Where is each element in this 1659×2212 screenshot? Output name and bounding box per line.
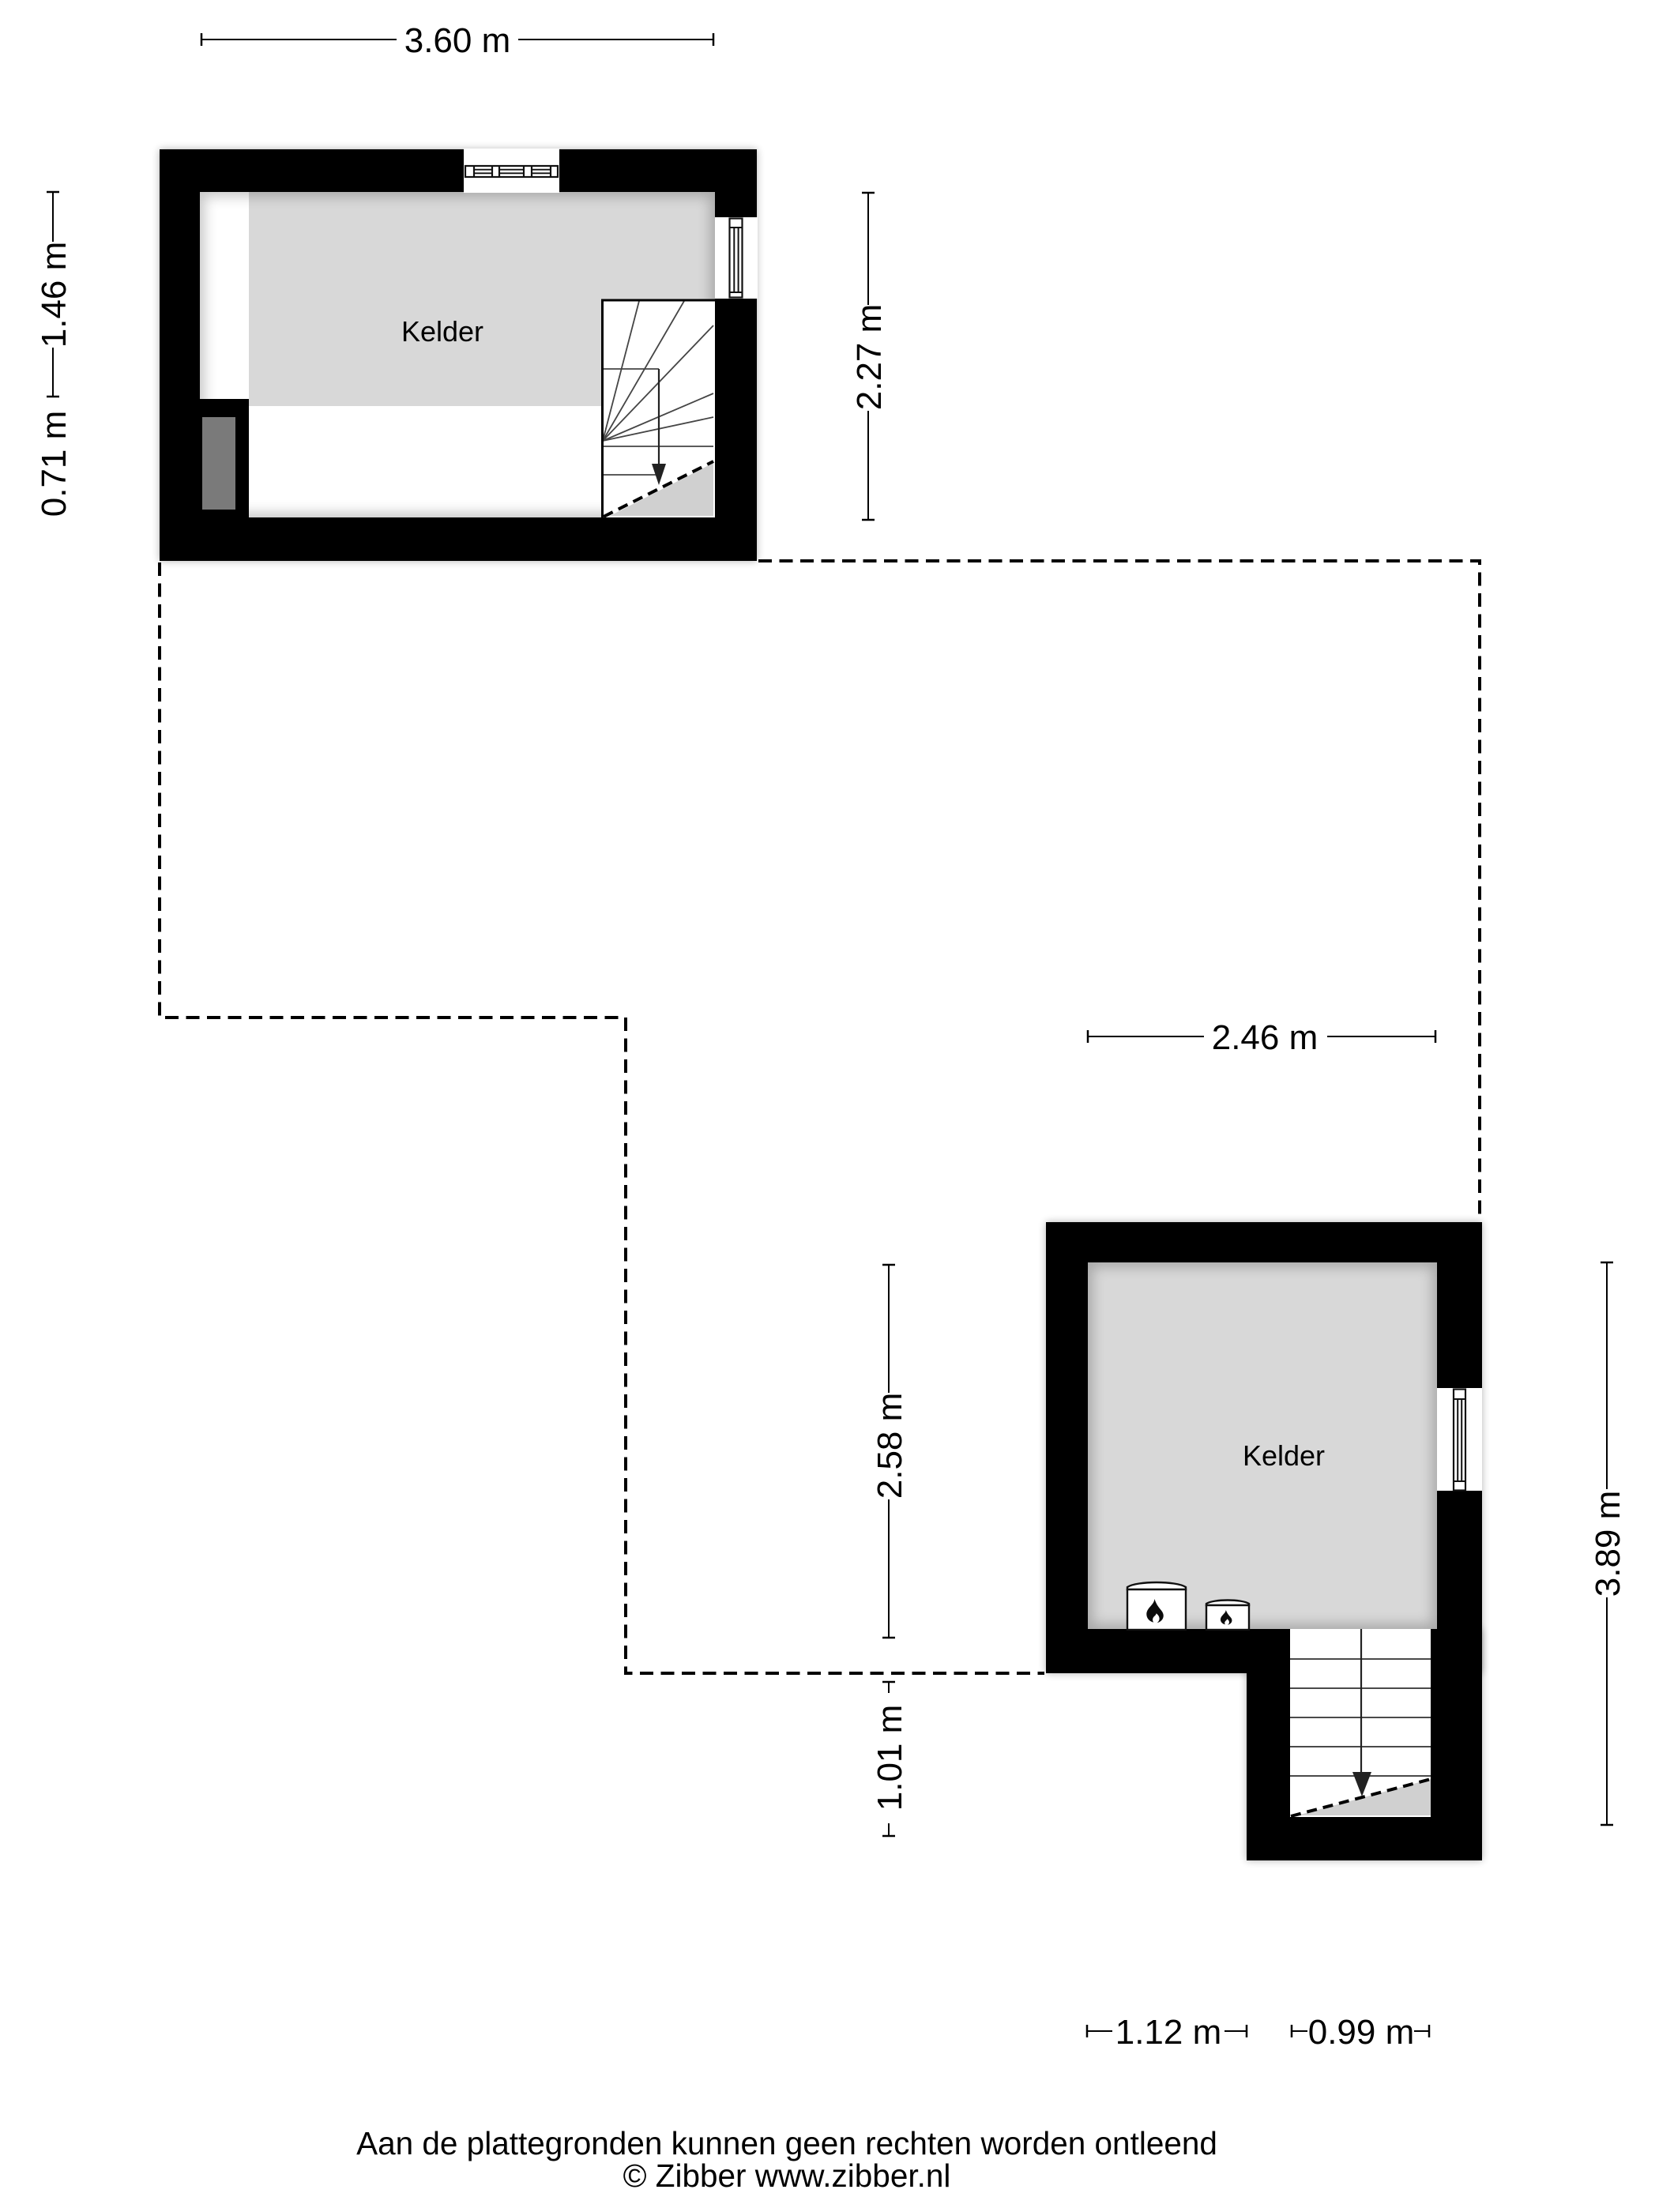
svg-text:Aan de plattegronden kunnen ge: Aan de plattegronden kunnen geen rechten… (356, 2125, 1217, 2161)
svg-text:Kelder: Kelder (401, 315, 483, 348)
svg-text:2.27 m: 2.27 m (850, 304, 889, 411)
svg-text:2.58 m: 2.58 m (871, 1393, 909, 1499)
svg-text:1.01 m: 1.01 m (871, 1705, 909, 1811)
svg-text:© Zibber www.zibber.nl: © Zibber www.zibber.nl (623, 2157, 951, 2194)
svg-text:Kelder: Kelder (1243, 1439, 1325, 1472)
svg-text:0.71 m: 0.71 m (35, 411, 73, 517)
svg-text:2.46 m: 2.46 m (1212, 1018, 1319, 1057)
svg-text:1.46 m: 1.46 m (35, 242, 73, 348)
svg-text:0.99 m: 0.99 m (1308, 2013, 1415, 2052)
svg-text:3.89 m: 3.89 m (1589, 1491, 1627, 1597)
svg-text:3.60 m: 3.60 m (404, 21, 511, 60)
svg-text:1.12 m: 1.12 m (1115, 2013, 1222, 2052)
